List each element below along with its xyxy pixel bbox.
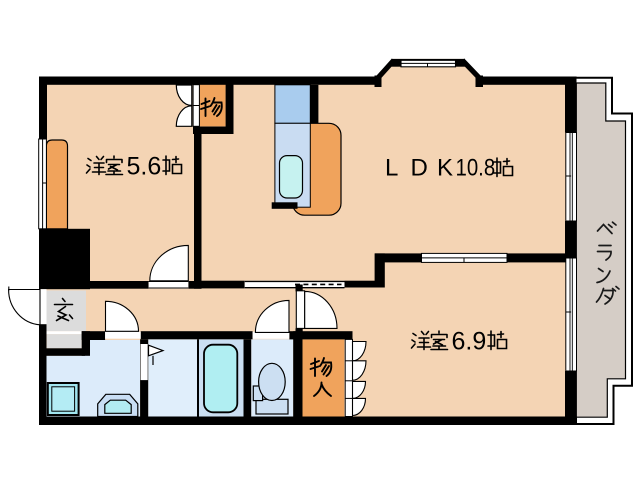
svg-text:K: K [437,155,453,182]
svg-text:6.9: 6.9 [452,328,487,356]
svg-text:5.6: 5.6 [127,153,162,181]
svg-text:10.8: 10.8 [456,154,496,181]
svg-text:D: D [411,155,428,182]
svg-text:L: L [385,155,398,182]
